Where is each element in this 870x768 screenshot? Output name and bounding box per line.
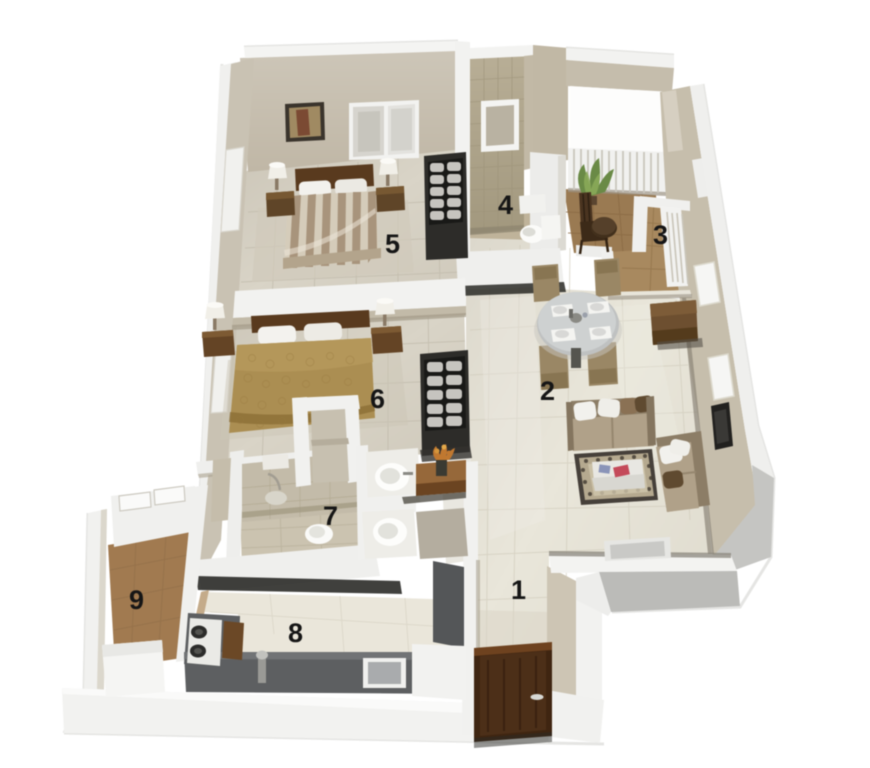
svg-text:6: 6 bbox=[370, 384, 385, 414]
svg-text:1: 1 bbox=[511, 575, 526, 605]
svg-text:5: 5 bbox=[385, 229, 400, 259]
svg-text:2: 2 bbox=[540, 376, 555, 406]
svg-text:8: 8 bbox=[288, 618, 303, 648]
svg-text:7: 7 bbox=[323, 501, 338, 531]
svg-text:9: 9 bbox=[129, 585, 144, 615]
svg-text:4: 4 bbox=[498, 190, 513, 220]
svg-text:3: 3 bbox=[653, 220, 668, 250]
